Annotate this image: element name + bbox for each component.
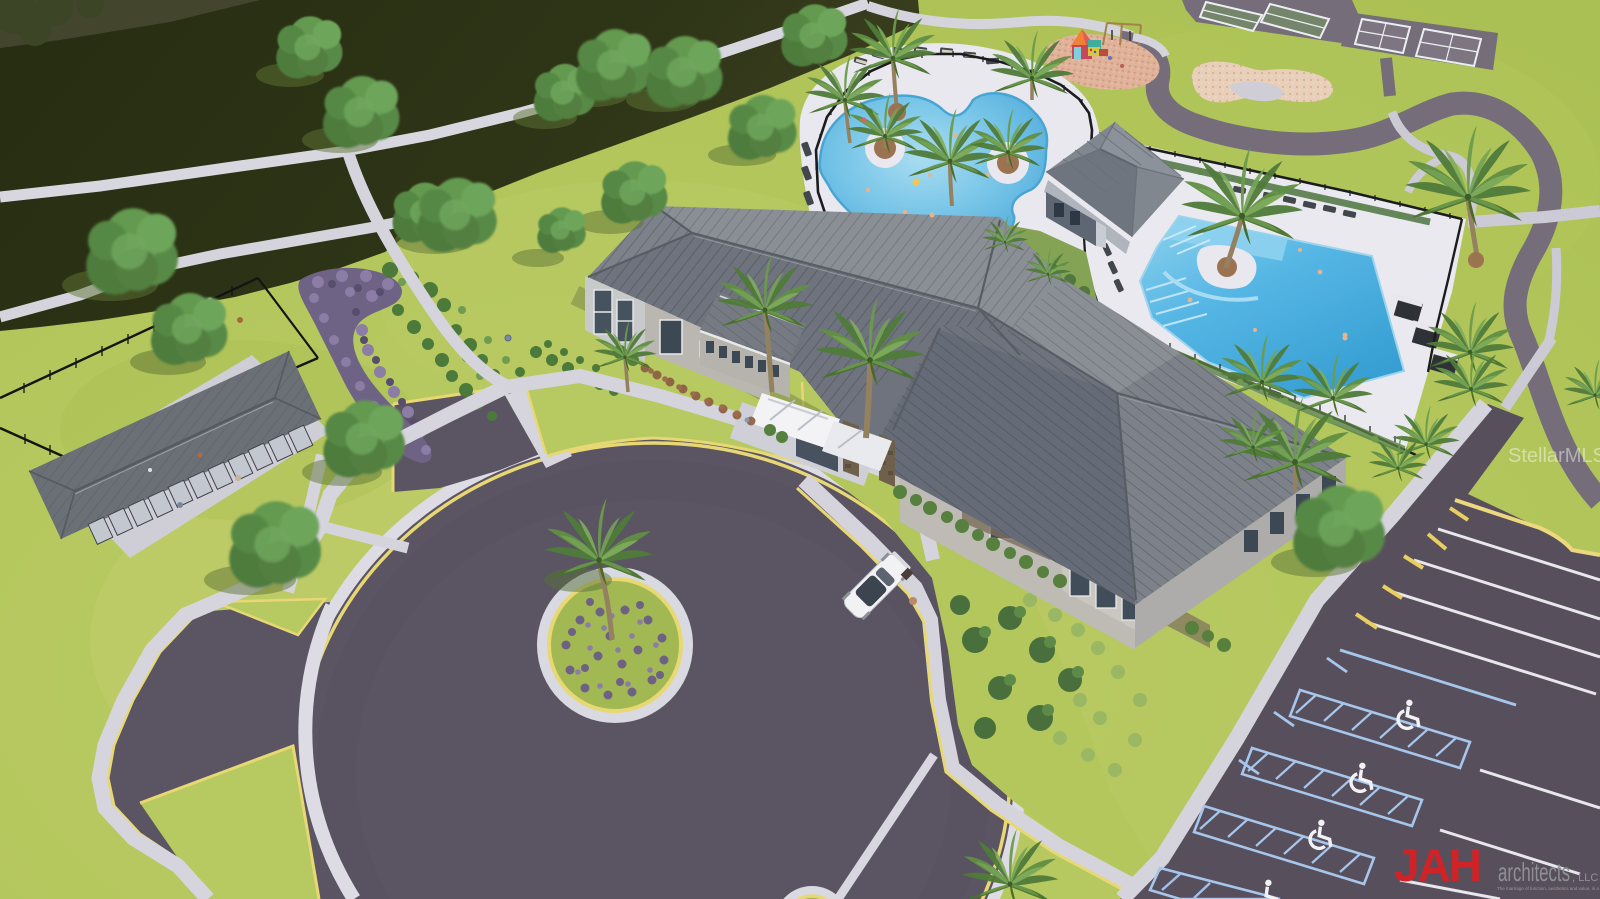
svg-text:The marriage of function, aest: The marriage of function, aesthetics and… [1497, 886, 1600, 891]
svg-text:JAH: JAH [1394, 839, 1480, 891]
svg-text:, LLC: , LLC [1572, 872, 1598, 884]
svg-text:architects: architects [1498, 857, 1570, 887]
svg-text:StellarMLS: StellarMLS [1508, 445, 1600, 467]
